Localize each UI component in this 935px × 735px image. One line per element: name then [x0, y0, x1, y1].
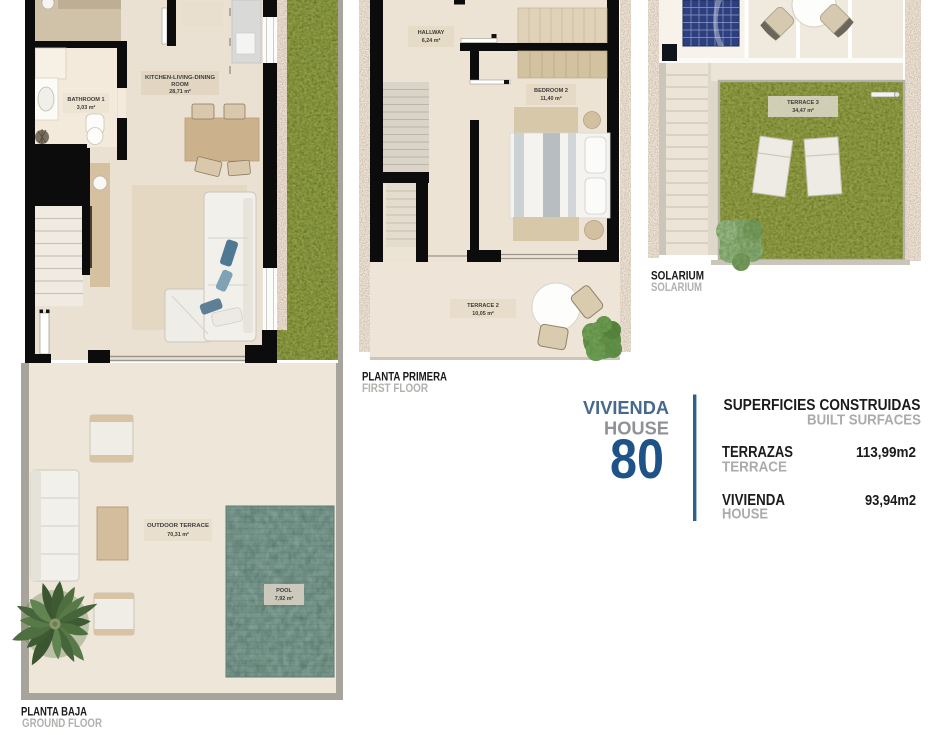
svg-text:POOL: POOL [276, 588, 292, 594]
svg-text:HOUSE: HOUSE [722, 506, 768, 523]
svg-text:TERRACE: TERRACE [722, 459, 787, 476]
svg-text:10,05 m²: 10,05 m² [472, 311, 494, 317]
svg-text:ROOM: ROOM [171, 82, 189, 88]
svg-text:OUTDOOR TERRACE: OUTDOOR TERRACE [147, 523, 209, 529]
svg-text:6,24 m²: 6,24 m² [422, 38, 441, 44]
svg-text:VIVIENDA: VIVIENDA [583, 397, 669, 418]
svg-text:80: 80 [610, 427, 664, 490]
svg-text:BUILT SURFACES: BUILT SURFACES [807, 412, 921, 429]
svg-text:70,31 m²: 70,31 m² [167, 532, 189, 538]
svg-text:3,03 m²: 3,03 m² [77, 105, 96, 111]
svg-text:TERRACE 3: TERRACE 3 [787, 100, 819, 106]
svg-text:GROUND FLOOR: GROUND FLOOR [22, 716, 102, 730]
svg-text:KITCHEN-LIVING-DINING: KITCHEN-LIVING-DINING [145, 75, 215, 81]
svg-text:SOLARIUM: SOLARIUM [651, 280, 702, 294]
svg-text:34,47 m²: 34,47 m² [792, 108, 814, 114]
svg-text:BATHROOM 1: BATHROOM 1 [67, 97, 104, 103]
svg-text:7,92 m²: 7,92 m² [275, 596, 294, 602]
svg-text:HALLWAY: HALLWAY [418, 30, 445, 36]
svg-text:11,40 m²: 11,40 m² [540, 96, 561, 102]
svg-text:FIRST FLOOR: FIRST FLOOR [362, 381, 428, 395]
svg-text:TERRACE 2: TERRACE 2 [467, 303, 499, 309]
svg-text:113,99m2: 113,99m2 [856, 444, 916, 461]
svg-text:93,94m2: 93,94m2 [865, 492, 916, 509]
svg-text:28,71 m²: 28,71 m² [169, 89, 191, 95]
svg-text:BEDROOM 2: BEDROOM 2 [534, 88, 568, 94]
